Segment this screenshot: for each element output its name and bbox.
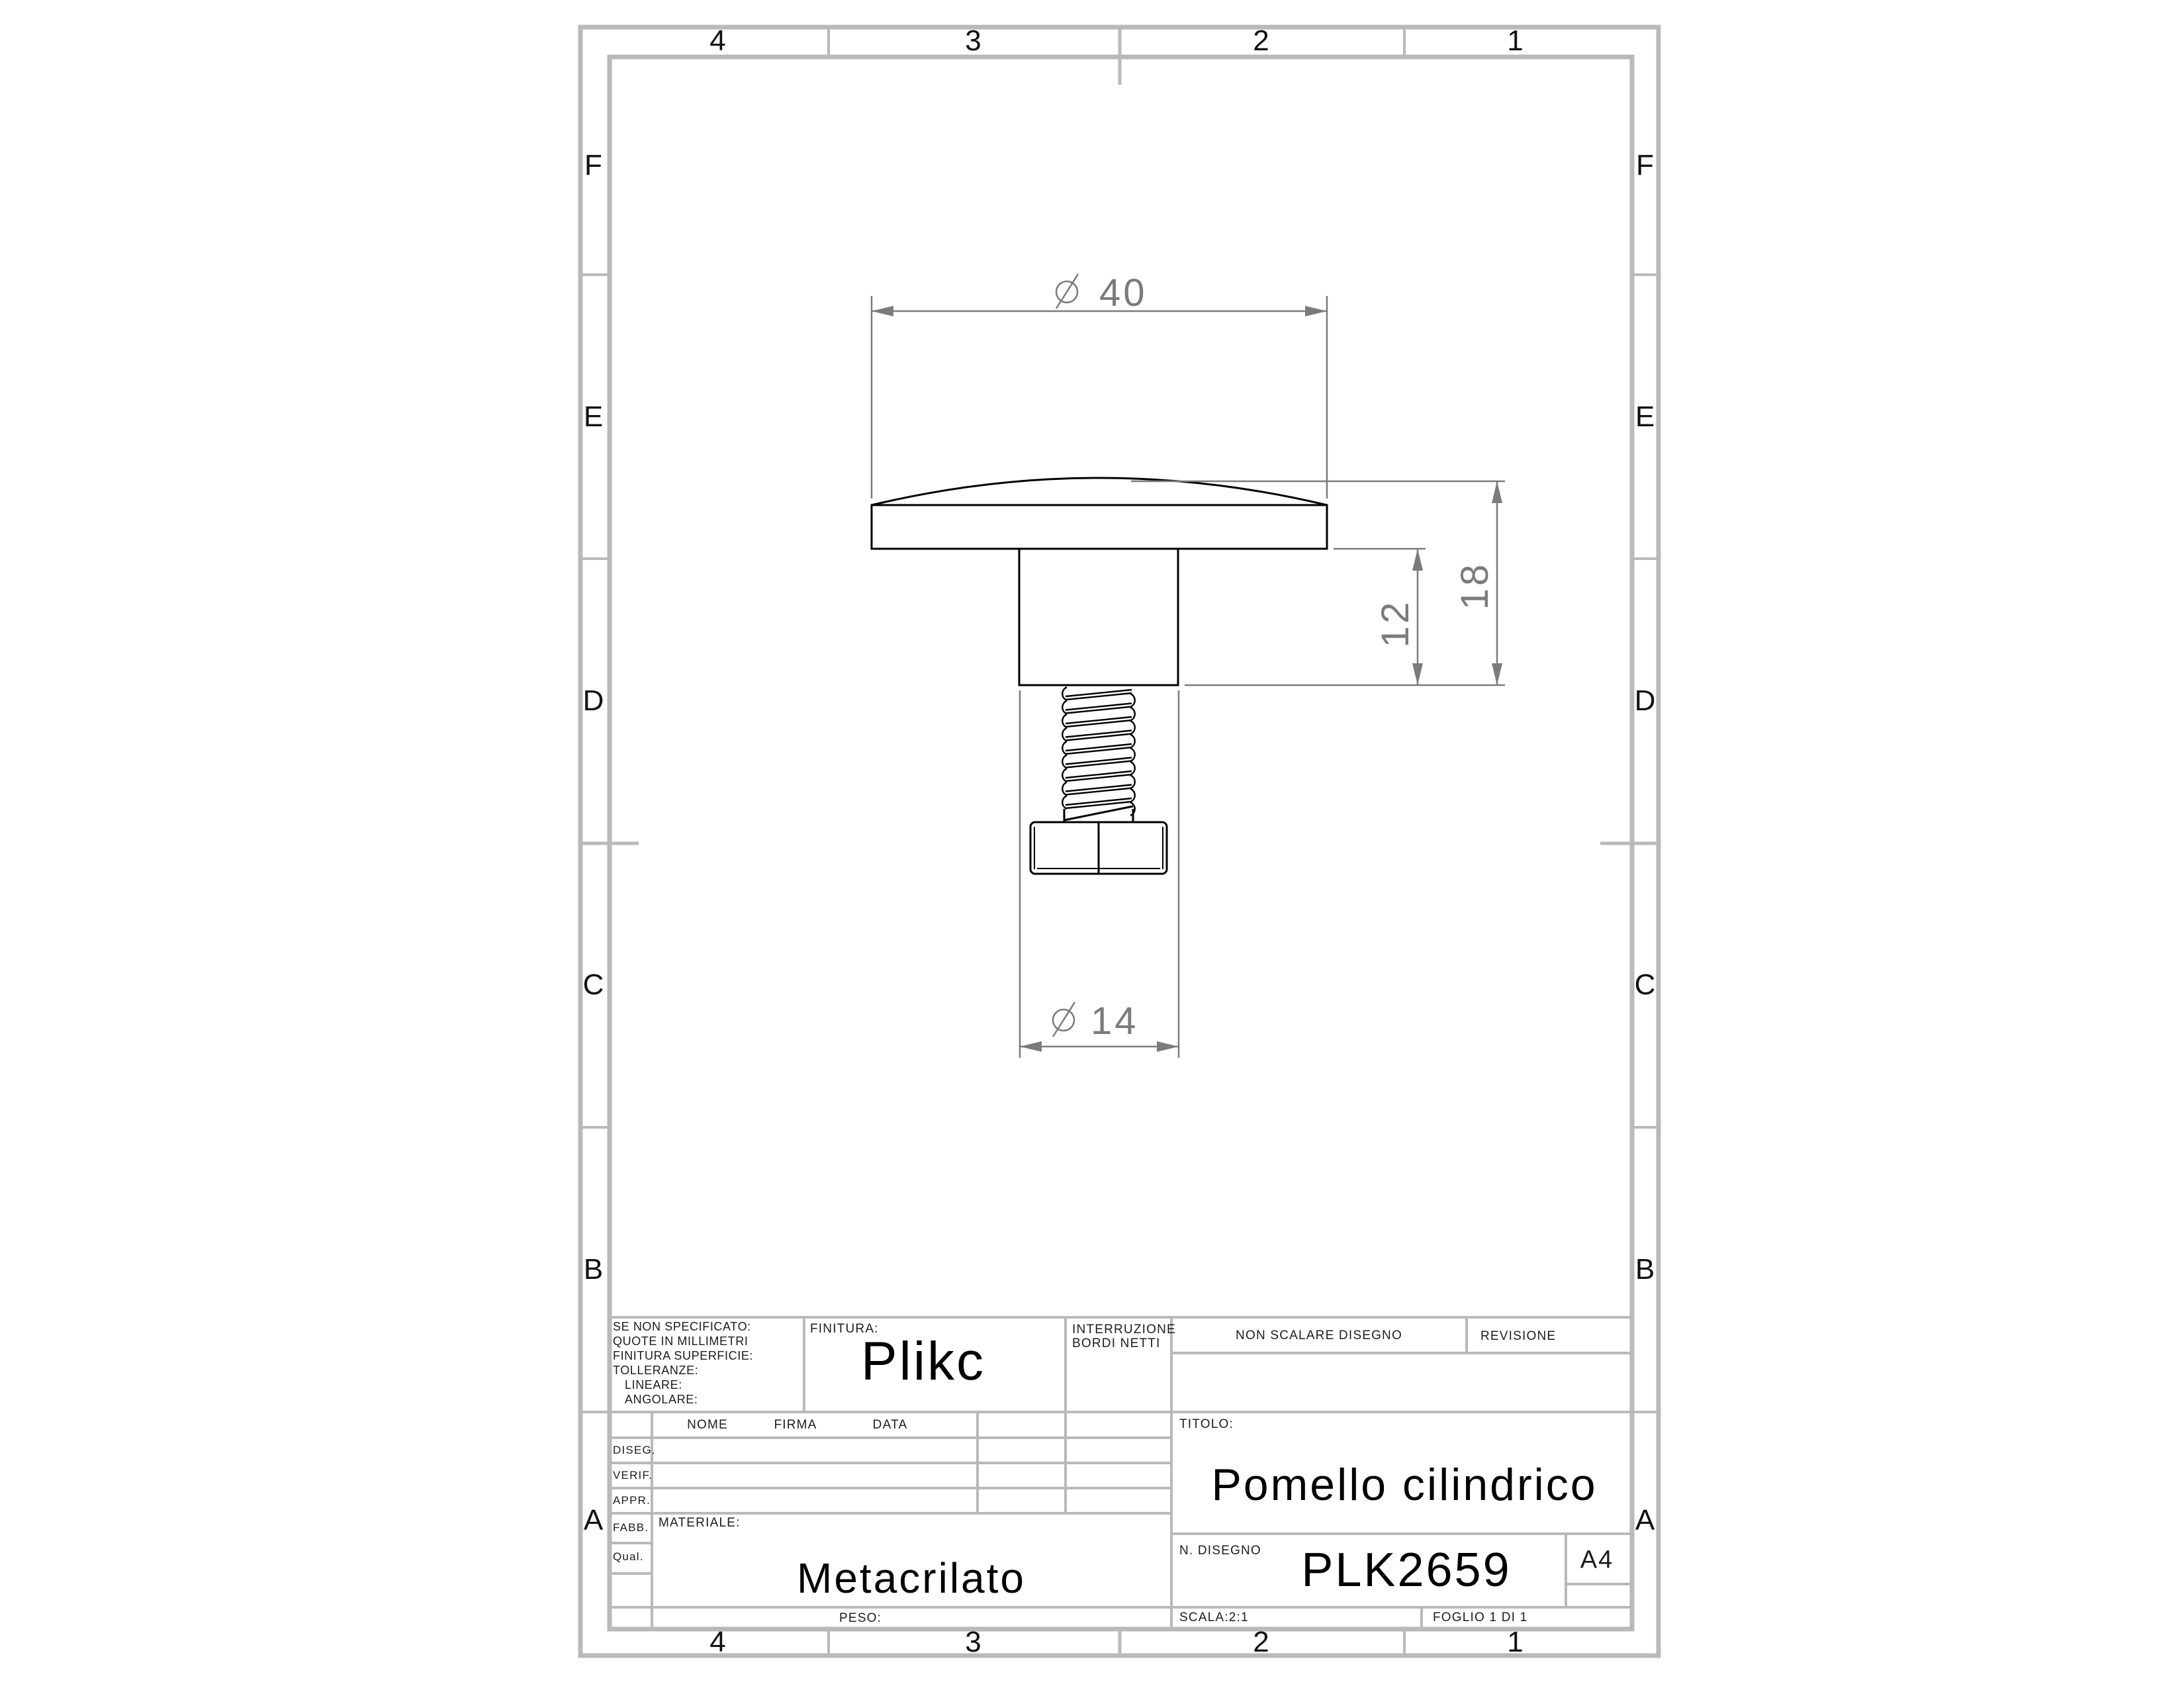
header-firma: FIRMA [774, 1418, 817, 1432]
knob-head [872, 505, 1327, 549]
zone-row-right-A: A [1635, 1504, 1655, 1537]
thread-helix-path [1062, 687, 1135, 816]
tolerance-note-line6: ANGOLARE: [625, 1393, 698, 1407]
materiale-value: Metacrilato [797, 1554, 1026, 1603]
zone-row-left-C: C [583, 968, 605, 1002]
drawing-sheet: 40 14 12 18 4 3 2 1 4 3 2 1 F E D C B A … [0, 0, 2184, 1688]
zone-col-bottom-3: 3 [965, 1626, 981, 1659]
header-nome: NOME [687, 1418, 728, 1432]
zone-row-left-F: F [584, 149, 603, 182]
zone-row-left-B: B [584, 1253, 604, 1286]
zone-col-bottom-1: 1 [1507, 1626, 1524, 1659]
interruzione-line1: INTERRUZIONE [1072, 1323, 1176, 1337]
tolerance-note-line2: QUOTE IN MILLIMETRI [613, 1335, 748, 1348]
zone-col-top-2: 2 [1253, 24, 1269, 58]
dim-18-value: 18 [1453, 562, 1496, 610]
thread-runout [1064, 806, 1133, 822]
sheet-format: A4 [1580, 1546, 1614, 1575]
n-disegno-label: N. DISEGNO [1179, 1544, 1261, 1558]
zone-row-right-D: D [1635, 684, 1657, 718]
part-drawing [872, 478, 1327, 874]
n-disegno-value: PLK2659 [1301, 1543, 1511, 1597]
dim-12-value: 12 [1374, 600, 1417, 648]
tolerance-note-line1: SE NON SPECIFICATO: [613, 1320, 751, 1334]
zone-row-right-E: E [1635, 400, 1655, 434]
tolerance-note-line3: FINITURA SUPERFICIE: [613, 1349, 753, 1363]
titolo-label: TITOLO: [1179, 1417, 1234, 1432]
row-label-verif: VERIF. [613, 1469, 653, 1482]
zone-col-bottom-2: 2 [1253, 1626, 1269, 1659]
titolo-value: Pomello cilindrico [1211, 1459, 1597, 1511]
zone-row-right-C: C [1635, 968, 1657, 1002]
scala-label: SCALA:2:1 [1179, 1611, 1249, 1625]
row-label-diseg: DISEG. [613, 1444, 656, 1457]
company-logo: Plikc [861, 1331, 985, 1393]
zone-col-top-3: 3 [965, 24, 981, 58]
knob-thread [1062, 687, 1135, 816]
interruzione-line2: BORDI NETTI [1072, 1336, 1161, 1351]
knob-neck [1019, 549, 1178, 685]
zone-row-left-D: D [583, 684, 605, 718]
zone-row-left-E: E [584, 400, 604, 434]
foglio-label: FOGLIO 1 DI 1 [1433, 1611, 1527, 1625]
materiale-label: MATERIALE: [659, 1516, 741, 1530]
zone-row-right-F: F [1636, 149, 1655, 182]
dim-14-value: 14 [1091, 1000, 1139, 1043]
zone-col-bottom-4: 4 [709, 1626, 726, 1659]
dimension-graphics [872, 274, 1505, 1058]
zone-row-right-B: B [1635, 1253, 1655, 1286]
peso-label: PESO: [839, 1611, 882, 1626]
tolerance-note-line4: TOLLERANZE: [613, 1364, 698, 1378]
zone-col-top-1: 1 [1507, 24, 1524, 58]
revisione-label: REVISIONE [1480, 1329, 1556, 1344]
header-data: DATA [873, 1418, 908, 1432]
zone-col-top-4: 4 [709, 24, 726, 58]
non-scalare-note: NON SCALARE DISEGNO [1236, 1329, 1402, 1343]
row-label-qual: Qual. [613, 1550, 644, 1564]
dim-40-value: 40 [1099, 271, 1148, 314]
row-label-appr: APPR. [613, 1494, 651, 1507]
row-label-fabb: FABB. [613, 1521, 649, 1534]
tolerance-note-line5: LINEARE: [625, 1378, 682, 1392]
zone-row-left-A: A [584, 1504, 604, 1537]
sheet-graphics: 40 14 12 18 [0, 0, 2184, 1688]
